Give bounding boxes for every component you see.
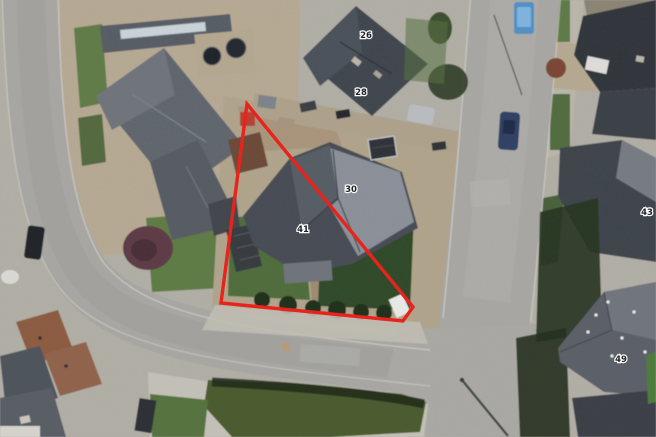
house-number-26: 26 (360, 31, 372, 41)
photo-grain (0, 0, 656, 437)
house-number-30: 30 (345, 185, 357, 195)
aerial-satellite-photo: 26 28 30 41 43 49 (0, 0, 656, 437)
house-number-28: 28 (355, 88, 367, 98)
house-number-49: 49 (615, 355, 627, 365)
photo-scene (0, 0, 656, 437)
house-number-41: 41 (297, 225, 309, 235)
house-number-43: 43 (641, 208, 653, 218)
